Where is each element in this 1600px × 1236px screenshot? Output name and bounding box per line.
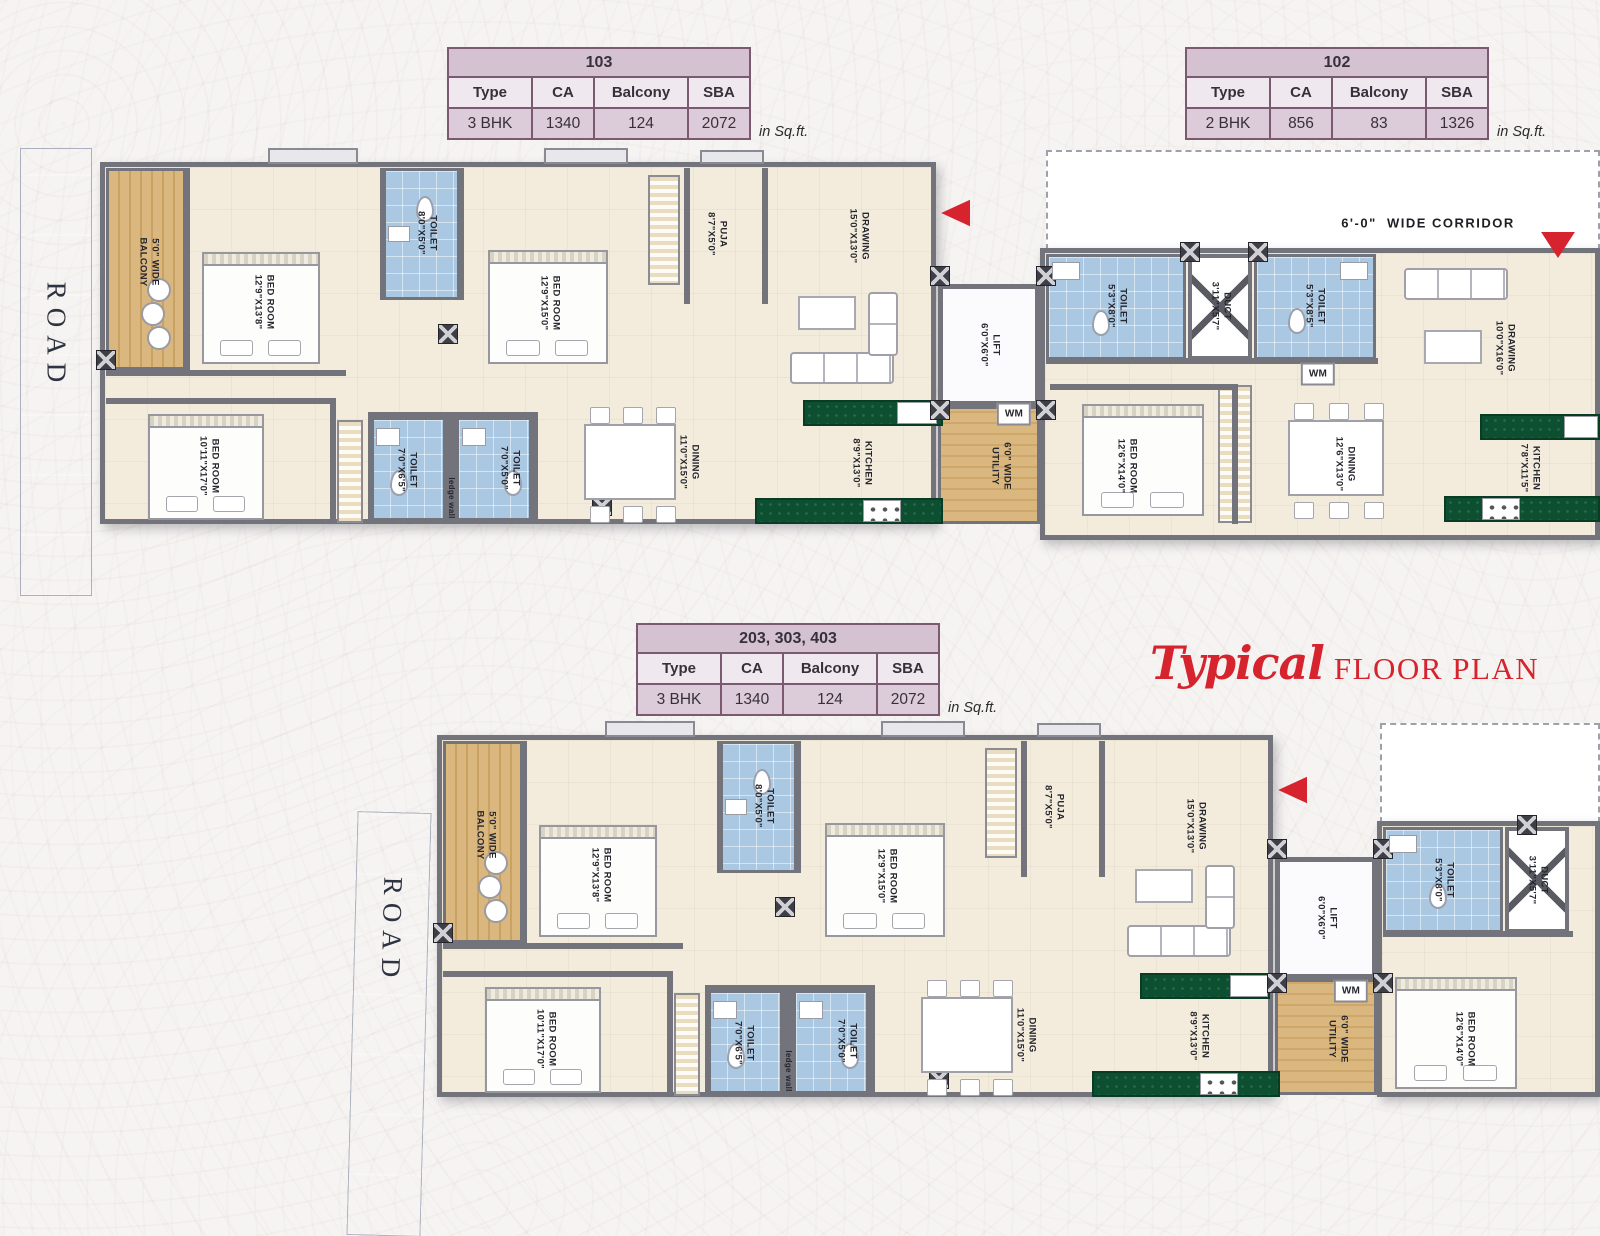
col-header: SBA <box>688 77 750 108</box>
bed-headboard <box>827 825 943 837</box>
type-value: 3 BHK <box>448 108 532 139</box>
wall-shape <box>795 741 801 873</box>
page-title: Typical FLOOR PLAN <box>1150 640 1539 686</box>
pillow <box>550 1069 582 1085</box>
sba-value: 1326 <box>1426 108 1488 139</box>
unit-number: 102 <box>1186 48 1488 77</box>
fixbox-shape <box>713 1001 737 1019</box>
balcony-value: 83 <box>1332 108 1426 139</box>
col-shape <box>775 897 795 917</box>
col-shape <box>1267 973 1287 993</box>
col-header: SBA <box>1426 77 1488 108</box>
sqft-note: in Sq.ft. <box>1497 124 1546 140</box>
ca-value: 856 <box>1270 108 1332 139</box>
col-shape <box>1267 839 1287 859</box>
col-header: Balcony <box>1332 77 1426 108</box>
wall-shape <box>521 741 527 945</box>
room-label: DRAWING 15'0"X13'0" <box>1183 799 1208 854</box>
type-value: 2 BHK <box>1186 108 1270 139</box>
entry-arrow-icon <box>1277 775 1307 805</box>
window <box>1037 723 1101 737</box>
col-header: Type <box>1186 77 1270 108</box>
chair <box>960 1079 980 1096</box>
fixbox-shape <box>1389 835 1417 853</box>
washing-machine-label: WM <box>1334 980 1368 1003</box>
room-label: DINING 11'0"X15'0" <box>1013 1008 1038 1062</box>
circ-shape <box>478 875 502 899</box>
col-shape <box>1517 815 1537 835</box>
room-label: TOILET 5'3"X8'0" <box>1431 858 1456 902</box>
typical-floor-plan: 5'0" WIDE BALCONYBED ROOM 12'9"X13'8"TOI… <box>0 0 1600 1236</box>
unit-102-data: 102 Type CA Balcony SBA 2 BHK 856 83 132… <box>1185 47 1489 140</box>
wall-shape <box>1021 741 1027 877</box>
col-shape <box>433 923 453 943</box>
chair <box>927 980 947 997</box>
room-label: PUJA 8'7"X5'0" <box>1041 785 1066 829</box>
wall-shape <box>705 985 875 991</box>
pillow <box>1463 1065 1497 1081</box>
ctable-shape <box>1135 869 1193 903</box>
unit-number: 103 <box>448 48 750 77</box>
title-script-word: Typical <box>1150 640 1324 686</box>
title-rest: FLOOR PLAN <box>1334 653 1539 684</box>
room-label: TOILET 7'0"X6'5" <box>731 1021 756 1065</box>
pillow <box>503 1069 535 1085</box>
wall-shape <box>443 971 667 977</box>
dining-table <box>921 997 1013 1073</box>
col-shape <box>1373 973 1393 993</box>
balcony-value: 124 <box>594 108 688 139</box>
sba-value: 2072 <box>877 684 939 715</box>
unit-203-data: 203, 303, 403 Type CA Balcony SBA 3 BHK … <box>636 623 940 716</box>
window <box>605 721 695 737</box>
unit-table-102: 102 Type CA Balcony SBA 2 BHK 856 83 132… <box>1185 47 1489 140</box>
room-label: DUCT 3'11"X5'7" <box>1525 856 1550 905</box>
unit-table-103: 103 Type CA Balcony SBA 3 BHK 1340 124 2… <box>447 47 751 140</box>
sba-value: 2072 <box>688 108 750 139</box>
room-label: BED ROOM 12'9"X15'0" <box>874 849 899 904</box>
room-label: BED ROOM 12'9"X13'8" <box>588 848 613 903</box>
balcony-value: 124 <box>783 684 877 715</box>
room-label: TOILET 7'0"X5'0" <box>834 1019 859 1063</box>
ca-value: 1340 <box>532 108 594 139</box>
room-label: TOILET 8'0"X5'0" <box>751 784 776 828</box>
unit-number: 203, 303, 403 <box>637 624 939 653</box>
wardrobe <box>674 993 700 1096</box>
room-label: KITCHEN 8'9"X13'0" <box>1186 1011 1211 1060</box>
chair <box>927 1079 947 1096</box>
col-header: Type <box>637 653 721 684</box>
wall-shape <box>1099 741 1105 877</box>
bed-headboard <box>487 989 599 1001</box>
col-header: CA <box>1270 77 1332 108</box>
circ-shape <box>484 899 508 923</box>
pillow <box>557 913 590 929</box>
wall-shape <box>717 741 723 873</box>
room-label: 5'0" WIDE BALCONY <box>473 810 498 859</box>
floor-plan-canvas: ROAD ROAD 5'0" WIDE BALCONYBED ROOM 12'9… <box>0 0 1600 1236</box>
sqft-note: in Sq.ft. <box>759 124 808 140</box>
col-header: Type <box>448 77 532 108</box>
chair <box>993 980 1013 997</box>
wall-shape <box>443 943 683 949</box>
bed-headboard <box>541 827 655 839</box>
sofa-shape <box>1205 865 1235 929</box>
room-label: LIFT 6'0"X6'0" <box>1314 896 1339 940</box>
bed-headboard <box>1397 979 1515 991</box>
chair <box>960 980 980 997</box>
fixbox-shape <box>725 799 747 815</box>
unit-table-203-303-403: 203, 303, 403 Type CA Balcony SBA 3 BHK … <box>636 623 940 716</box>
wall-shape <box>869 985 875 1095</box>
ca-value: 1340 <box>721 684 783 715</box>
wall-shape <box>1383 931 1573 937</box>
wall-shape <box>705 985 711 1095</box>
wall-shape <box>667 971 673 1097</box>
room-label: BED ROOM 12'6"X14'0" <box>1452 1012 1477 1067</box>
pillow <box>605 913 638 929</box>
room-label: ledge wall <box>783 1050 793 1091</box>
room-label: 6'0" WIDE UTILITY <box>1325 1015 1350 1062</box>
window <box>881 721 965 737</box>
type-value: 3 BHK <box>637 684 721 715</box>
room-label: BED ROOM 10'11"X17'0" <box>533 1009 558 1069</box>
stove <box>1200 1073 1238 1095</box>
corridor-open-area <box>1380 723 1600 823</box>
pillow <box>1414 1065 1448 1081</box>
col-header: Balcony <box>783 653 877 684</box>
sqft-note: in Sq.ft. <box>948 700 997 716</box>
unit-103-data: 103 Type CA Balcony SBA 3 BHK 1340 124 2… <box>447 47 751 140</box>
chair <box>993 1079 1013 1096</box>
wardrobe <box>985 748 1017 858</box>
col-header: Balcony <box>594 77 688 108</box>
col-header: SBA <box>877 653 939 684</box>
pillow <box>892 913 925 929</box>
sink <box>1230 975 1268 997</box>
fixbox-shape <box>799 1001 823 1019</box>
col-header: CA <box>532 77 594 108</box>
kitchen-counter <box>1092 1071 1280 1097</box>
col-header: CA <box>721 653 783 684</box>
sofa-shape <box>1127 925 1231 957</box>
pillow <box>843 913 876 929</box>
